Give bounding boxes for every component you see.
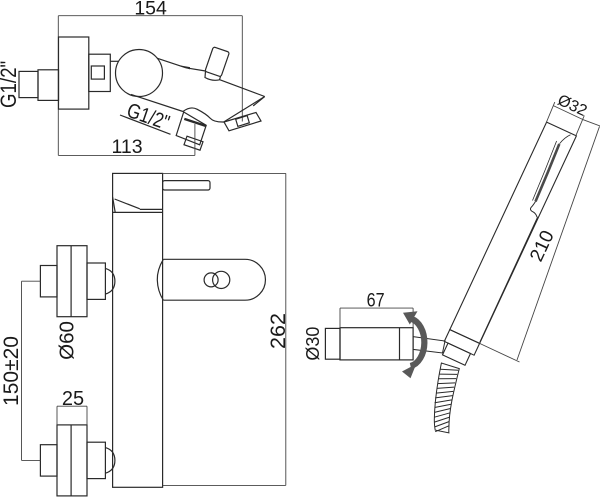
svg-text:Ø60: Ø60 [56,321,79,360]
svg-text:Ø30: Ø30 [303,327,323,361]
svg-text:G1/2": G1/2" [124,99,173,135]
svg-text:262: 262 [266,313,290,349]
svg-text:150±20: 150±20 [0,336,23,406]
svg-text:113: 113 [111,136,142,158]
svg-text:G1/2": G1/2" [0,61,22,108]
svg-text:154: 154 [134,0,167,19]
svg-text:25: 25 [62,388,84,410]
svg-text:67: 67 [367,289,385,311]
